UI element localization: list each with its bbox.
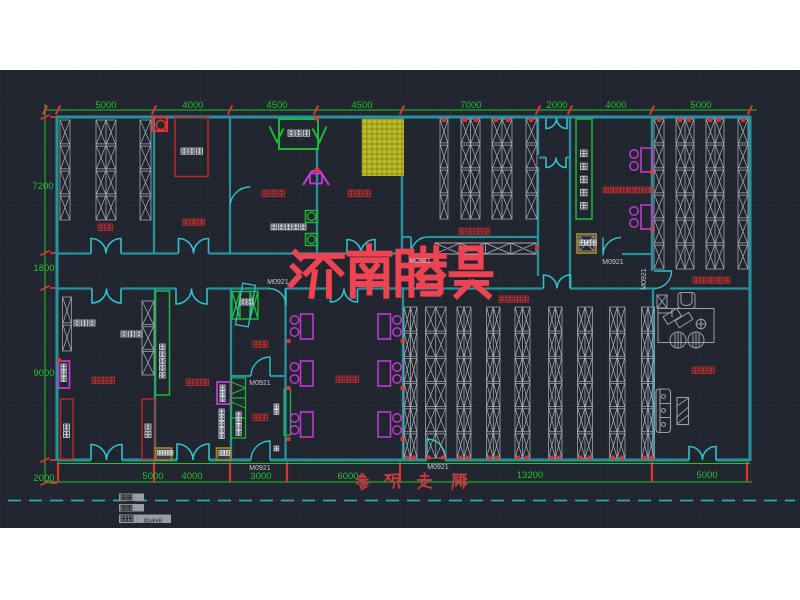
svg-text:2000: 2000 [546, 100, 567, 111]
svg-text::: : [135, 496, 137, 503]
svg-text:M0921: M0921 [427, 464, 449, 471]
svg-text::: : [135, 506, 137, 513]
svg-text:5000: 5000 [95, 100, 116, 111]
svg-text:4000: 4000 [182, 100, 203, 111]
svg-text:M0921: M0921 [249, 380, 271, 387]
svg-text:9000: 9000 [33, 368, 54, 379]
svg-text:M0921: M0921 [409, 258, 431, 265]
svg-text:M0921: M0921 [641, 268, 648, 290]
svg-text:4500: 4500 [266, 100, 287, 111]
svg-text:4000: 4000 [605, 100, 626, 111]
svg-text:4500: 4500 [351, 100, 372, 111]
svg-text:5000: 5000 [142, 471, 163, 482]
svg-text:5000: 5000 [690, 100, 711, 111]
svg-text:M0921: M0921 [249, 465, 271, 472]
svg-text:7000: 7000 [460, 100, 481, 111]
svg-text:3000: 3000 [250, 471, 271, 482]
svg-text:1800: 1800 [33, 263, 54, 274]
svg-text:13200: 13200 [517, 470, 543, 481]
svg-text:4000: 4000 [181, 471, 202, 482]
svg-text:M0921: M0921 [267, 279, 289, 286]
svg-text:7200: 7200 [32, 181, 53, 192]
svg-text:M0921: M0921 [602, 259, 624, 266]
svg-text:5000: 5000 [696, 470, 717, 481]
svg-text:6000: 6000 [337, 471, 358, 482]
svg-text:: _qsave: : _qsave [136, 517, 163, 524]
